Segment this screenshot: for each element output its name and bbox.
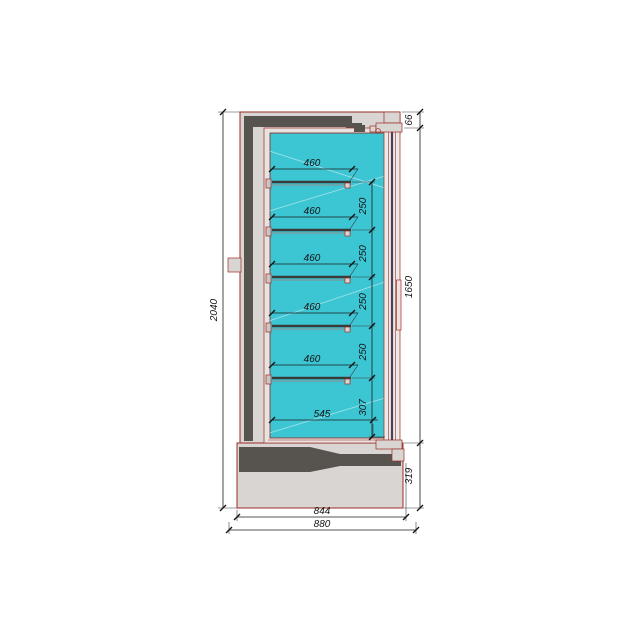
dim-overall-depth: 880 xyxy=(226,519,419,534)
shelf-front-rail xyxy=(345,183,350,188)
shelf-front-rail xyxy=(345,231,350,236)
shelf-wall-bracket xyxy=(266,274,271,283)
dim-label-shelf-spacing: 250 xyxy=(358,197,369,215)
dim-label-base-depth: 844 xyxy=(314,506,331,517)
dim-label-canopy-height: 66 xyxy=(404,114,415,126)
dim-label-shelf-depth: 460 xyxy=(304,253,321,264)
shelf-front-rail xyxy=(345,278,350,283)
canopy-fascia-box xyxy=(384,112,400,123)
shelf-wall-bracket xyxy=(266,179,271,188)
dim-door-opening-height: 1650 xyxy=(404,128,424,446)
shelf-front-rail xyxy=(345,379,350,384)
dim-canopy-height: 66 xyxy=(402,109,424,131)
dim-label-base-height: 319 xyxy=(404,467,415,484)
dim-label-shelf-spacing: 250 xyxy=(358,293,369,311)
insulation-back-band xyxy=(244,116,253,441)
door-bottom-foot xyxy=(392,449,404,461)
interior-cavity xyxy=(270,133,385,438)
door-bottom-profile xyxy=(376,440,402,449)
dim-label-bottom-shelf-depth: 545 xyxy=(314,409,331,420)
dim-label-shelf-depth: 460 xyxy=(304,158,321,169)
shelf-front-rail xyxy=(345,327,350,332)
shelf-wall-bracket xyxy=(266,375,271,384)
dim-label-overall-depth: 880 xyxy=(314,519,331,530)
canopy-light-fixture xyxy=(354,125,365,132)
door-top-profile xyxy=(376,123,402,132)
dim-label-door-opening-height: 1650 xyxy=(404,275,415,298)
dim-label-shelf-depth: 460 xyxy=(304,354,321,365)
dim-label-shelf-spacing: 250 xyxy=(358,245,369,263)
dim-label-bottom-spacing: 307 xyxy=(358,399,369,416)
dim-base-height: 319 xyxy=(404,443,424,511)
shelf-wall-bracket xyxy=(266,323,271,332)
hinge-block xyxy=(370,126,376,132)
shelf-wall-bracket xyxy=(266,227,271,236)
wall-spacer-block xyxy=(228,258,241,272)
technical-drawing-page: 460 460 460 460 460 545 xyxy=(0,0,640,640)
dim-label-shelf-spacing: 250 xyxy=(358,343,369,361)
dim-overall-height: 2040 xyxy=(209,109,240,511)
dim-label-shelf-depth: 460 xyxy=(304,206,321,217)
cabinet-section-drawing: 460 460 460 460 460 545 xyxy=(0,0,640,640)
dim-label-overall-height: 2040 xyxy=(209,298,220,322)
dim-label-shelf-depth: 460 xyxy=(304,302,321,313)
door-handle xyxy=(397,280,402,330)
